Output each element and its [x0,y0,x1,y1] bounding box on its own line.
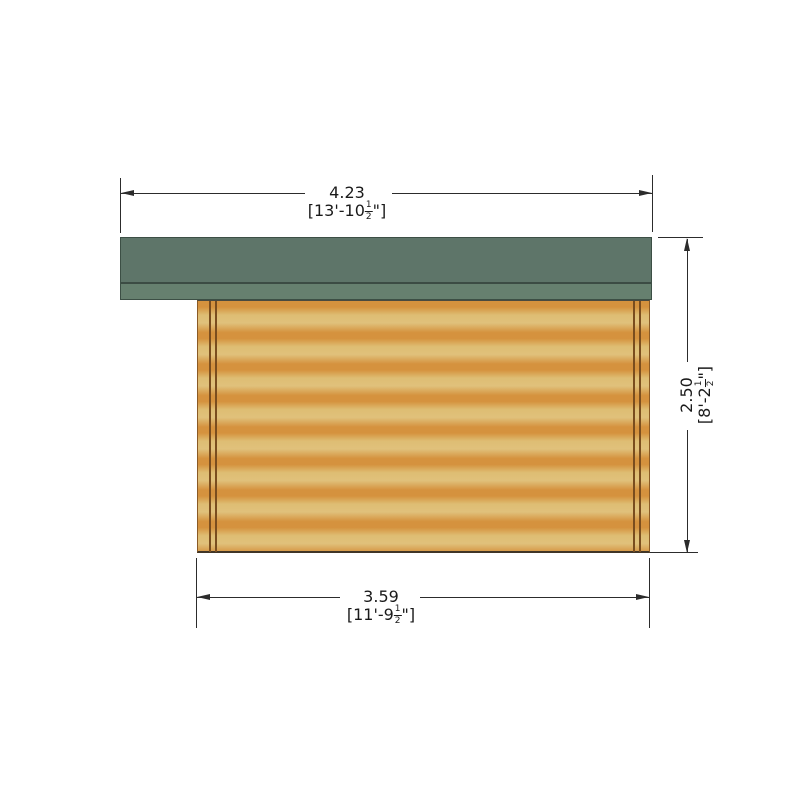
right-dim-imperial: [8'-212"] [695,366,716,424]
top-dim-line-left-segment [121,193,305,194]
roof-fascia [121,284,651,299]
bottom-dim-arrowhead-right [636,594,649,600]
bottom-dim-label: 3.59 [11'-912"] [347,588,415,626]
right-dim-arrowhead-top [684,238,690,251]
bottom-dim-imperial: [11'-912"] [347,605,415,626]
top-dim-arrowhead-left [121,190,134,196]
top-dim-metric: 4.23 [308,184,386,201]
right-dim-label: 2.50 [8'-212"] [678,366,716,424]
top-dim-line-right-segment [392,193,652,194]
top-dim-extension-left [120,178,121,233]
right-dim-line-top-segment [687,239,688,362]
top-dim-imperial: [13'-1012"] [308,201,386,222]
ground-extension-line [650,552,698,553]
right-dim-line-bottom-segment [687,430,688,552]
bottom-dim-extension-right [649,558,650,628]
right-dim-fraction: 12 [695,380,716,388]
right-dim-metric: 2.50 [678,366,695,424]
wall [197,300,650,553]
corner-post-line-right-outer [639,301,641,552]
corner-post-line-right-inner [633,301,635,552]
right-dim-extension-top [658,237,703,238]
bottom-dim-fraction: 12 [394,605,402,626]
top-dim-fraction: 12 [365,201,373,222]
roof [120,237,652,300]
corner-post-line-left-outer [209,301,211,552]
top-dim-extension-right [652,175,653,232]
corner-post-line-left-inner [215,301,217,552]
bottom-dim-metric: 3.59 [347,588,415,605]
bottom-dim-arrowhead-left [197,594,210,600]
bottom-dim-extension-left [196,558,197,628]
bottom-dim-line-right-segment [420,597,649,598]
top-dim-arrowhead-right [639,190,652,196]
top-dim-label: 4.23 [13'-1012"] [308,184,386,222]
bottom-dim-line-left-segment [197,597,340,598]
right-dim-arrowhead-bottom [684,540,690,553]
elevation-drawing: 4.23 [13'-1012"] 2.50 [8'-212"] 3.59 [11… [0,0,800,800]
